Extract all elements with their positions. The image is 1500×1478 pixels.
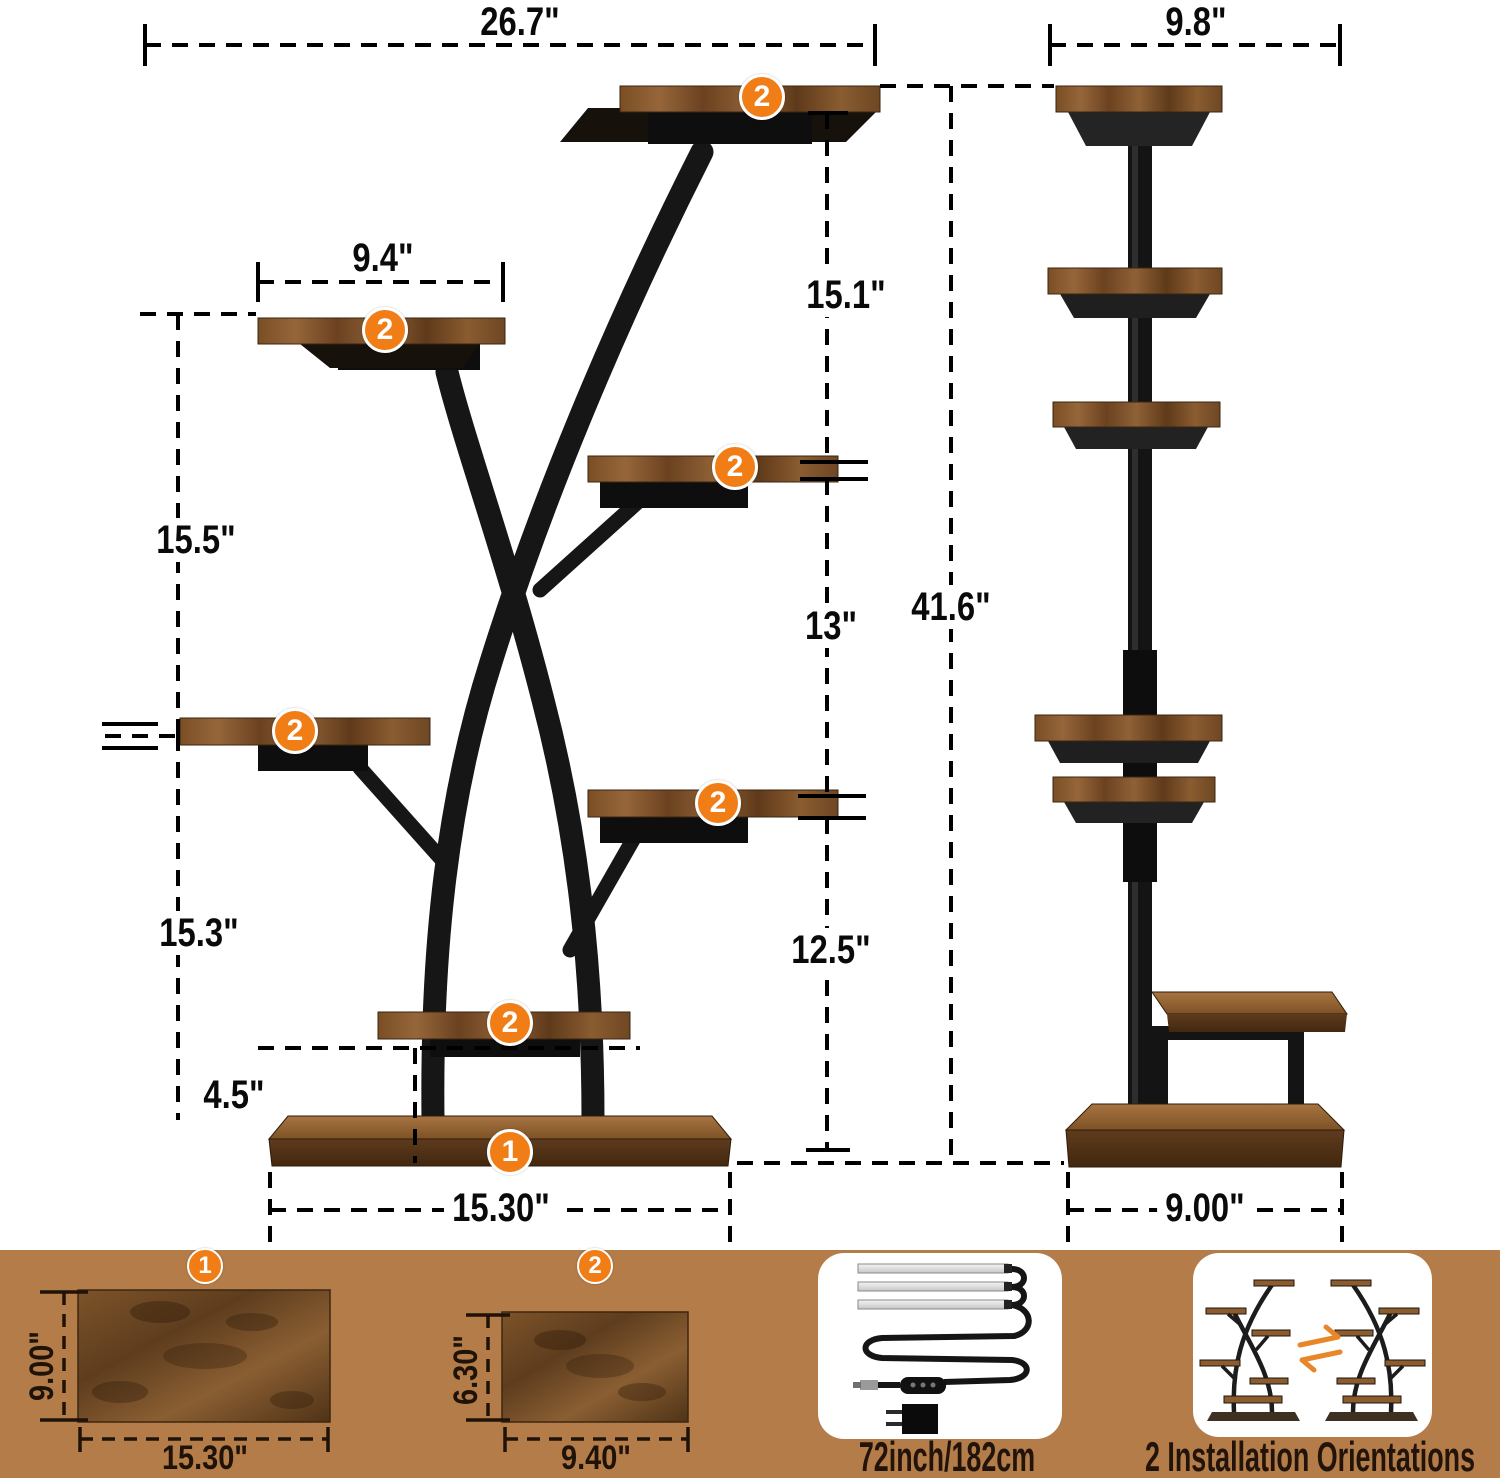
dim-shelf-width: 9.4" xyxy=(352,238,413,278)
grow-light-length-label: 72inch/182cm xyxy=(859,1436,1035,1478)
shelf-badge: 2 xyxy=(487,1000,533,1046)
dim-overall-height: 41.6" xyxy=(903,585,999,629)
legend-board-small-width: 9.40" xyxy=(561,1441,631,1475)
dim-right-lower: 12.5" xyxy=(783,928,879,972)
legend-board-small-badge: 2 xyxy=(577,1248,613,1284)
dim-base-depth: 9.00" xyxy=(1157,1186,1253,1230)
legend-board-large-depth: 9.00" xyxy=(25,1331,59,1401)
labels-layer: 26.7" 9.4" 15.1" 15.5" 13" 41.6" 15.3" 1… xyxy=(0,0,1500,1478)
shelf-badge: 2 xyxy=(739,74,785,120)
shelf-badge: 2 xyxy=(695,780,741,826)
dim-middle: 13" xyxy=(797,604,865,648)
dim-base-shelf: 4.5" xyxy=(203,1075,264,1115)
shelf-badge: 2 xyxy=(712,444,758,490)
dim-left-lower: 15.3" xyxy=(151,911,247,955)
base-badge: 1 xyxy=(487,1129,533,1175)
shelf-badge: 2 xyxy=(362,307,408,353)
dim-top-depth: 9.8" xyxy=(1165,2,1226,42)
shelf-badge: 2 xyxy=(272,708,318,754)
legend-board-large-width: 15.30" xyxy=(162,1441,248,1475)
dim-top-to-middle: 15.1" xyxy=(798,273,894,317)
product-dimension-diagram: 26.7" 9.4" 15.1" 15.5" 13" 41.6" 15.3" 1… xyxy=(0,0,1500,1478)
orientations-label: 2 Installation Orientations xyxy=(1145,1436,1475,1478)
dim-base-width: 15.30" xyxy=(444,1186,558,1230)
dim-left-upper: 15.5" xyxy=(148,518,244,562)
legend-board-small-depth: 6.30" xyxy=(449,1335,483,1405)
dim-overall-width: 26.7" xyxy=(480,2,559,42)
legend-board-large-badge: 1 xyxy=(187,1248,223,1284)
